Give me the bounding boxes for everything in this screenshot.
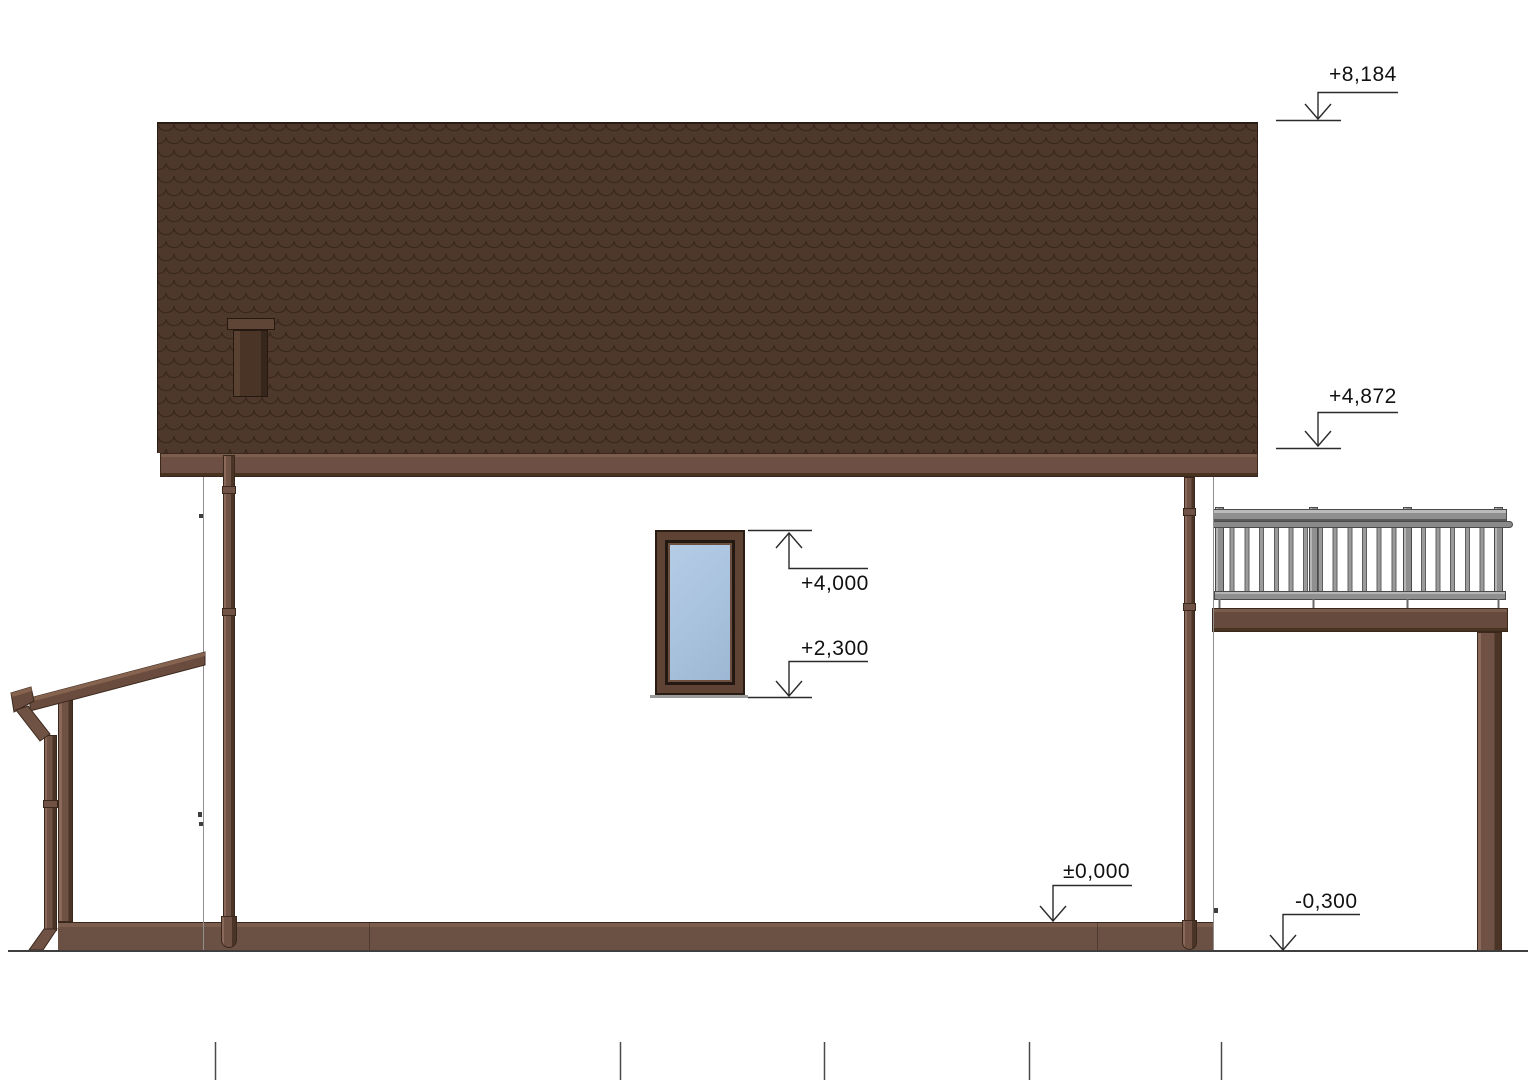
- level-label-eaves: +4,872: [1329, 385, 1397, 409]
- right-downpipe-shoe: [1182, 920, 1197, 950]
- porch-downpipe: [44, 735, 57, 931]
- chimney-body: [233, 330, 268, 397]
- porch-post: [58, 700, 73, 922]
- balcony-bottom-rail: [1214, 591, 1506, 600]
- anchor-mark: [199, 514, 203, 518]
- window-glass: [670, 545, 730, 680]
- plinth-joint: [369, 922, 370, 951]
- balcony-deck: [1212, 608, 1508, 632]
- anchor-mark: [199, 822, 203, 826]
- chimney-cap: [227, 318, 275, 330]
- balcony-balusters: [1215, 524, 1503, 599]
- railing-post-feet: [1220, 599, 1499, 608]
- window: [655, 530, 745, 695]
- anchor-mark: [198, 812, 202, 817]
- roof-tiled-slope: [157, 122, 1258, 453]
- axis-ticks: [216, 1042, 1222, 1080]
- balcony-handrail-bar: [1213, 521, 1513, 528]
- left-downpipe: [223, 455, 235, 918]
- window-sill: [650, 695, 748, 698]
- left-downpipe-shoe: [221, 916, 237, 948]
- level-label-ridge: +8,184: [1329, 63, 1397, 87]
- window-inner-frame: [665, 540, 735, 685]
- balcony-support-post: [1477, 632, 1502, 951]
- level-label-ground: -0,300: [1295, 890, 1358, 914]
- eaves-fascia: [160, 453, 1258, 477]
- level-label-window-top: +4,000: [801, 572, 869, 596]
- anchor-mark: [1213, 908, 1218, 913]
- level-label-floor: ±0,000: [1063, 860, 1130, 884]
- elevation-drawing-canvas: +8,184 +4,872 +4,000 +2,300 ±0,000 -0,30…: [0, 0, 1528, 1080]
- porch-gutter-end: [11, 687, 34, 712]
- porch-beam: [30, 652, 205, 711]
- right-downpipe: [1184, 477, 1195, 922]
- plinth-joint: [1097, 922, 1098, 951]
- level-label-window-bottom: +2,300: [801, 637, 869, 661]
- porch-downpipe-shoe: [29, 929, 57, 950]
